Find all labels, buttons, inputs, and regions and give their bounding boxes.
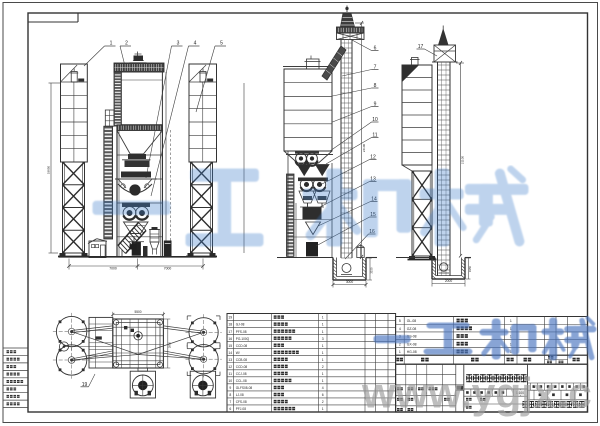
svg-text:GLFS08-08: GLFS08-08 <box>236 386 253 390</box>
svg-text:2000: 2000 <box>445 279 453 283</box>
svg-text:www.ygjx.c: www.ygjx.c <box>361 370 592 418</box>
svg-text:CFS-08: CFS-08 <box>236 400 247 404</box>
svg-text:1: 1 <box>322 330 324 334</box>
svg-text:CCD-08: CCD-08 <box>236 344 248 348</box>
svg-text:1: 1 <box>322 379 324 383</box>
svg-text:1950: 1950 <box>468 265 472 272</box>
svg-text:7000: 7000 <box>109 266 117 270</box>
svg-text:5: 5 <box>220 41 223 47</box>
svg-text:3: 3 <box>322 337 324 341</box>
svg-text:3150: 3150 <box>369 267 373 274</box>
svg-text:3000: 3000 <box>346 280 354 284</box>
svg-text:1: 1 <box>322 344 324 348</box>
svg-text:6: 6 <box>229 407 231 411</box>
svg-text:19: 19 <box>228 316 232 320</box>
svg-text:CCJ-08: CCJ-08 <box>236 372 247 376</box>
svg-text:LJ-08: LJ-08 <box>236 393 244 397</box>
svg-text:GJ-08: GJ-08 <box>236 323 245 327</box>
svg-text:CCL-08: CCL-08 <box>236 379 247 383</box>
svg-text:7: 7 <box>229 400 231 404</box>
svg-text:4: 4 <box>194 41 197 47</box>
svg-text:1: 1 <box>322 358 324 362</box>
svg-text:6: 6 <box>322 393 324 397</box>
svg-text:15: 15 <box>228 344 232 348</box>
svg-text:8: 8 <box>229 393 231 397</box>
svg-text:5: 5 <box>399 319 401 323</box>
svg-text:1: 1 <box>399 350 401 354</box>
svg-text:PFJ-08: PFJ-08 <box>236 407 247 411</box>
svg-text:13: 13 <box>228 358 232 362</box>
svg-text:10: 10 <box>228 379 232 383</box>
svg-text:2: 2 <box>322 365 324 369</box>
svg-text:W/: W/ <box>236 351 240 355</box>
svg-text:24100: 24100 <box>362 143 366 152</box>
svg-text:1: 1 <box>510 319 512 323</box>
svg-text:16: 16 <box>228 337 232 341</box>
svg-text:1: 1 <box>322 323 324 327</box>
svg-text:9: 9 <box>229 386 231 390</box>
svg-text:1: 1 <box>322 372 324 376</box>
svg-text:PG-100Q: PG-100Q <box>236 337 250 341</box>
svg-text:1: 1 <box>322 407 324 411</box>
svg-text:17: 17 <box>228 330 232 334</box>
svg-text:18: 18 <box>228 323 232 327</box>
svg-text:1: 1 <box>322 316 324 320</box>
svg-text:1: 1 <box>322 351 324 355</box>
svg-text:11: 11 <box>229 372 233 376</box>
svg-text:14: 14 <box>228 351 232 355</box>
svg-text:18850: 18850 <box>47 165 51 174</box>
svg-text:2850: 2850 <box>167 341 171 348</box>
svg-text:21100: 21100 <box>461 156 465 164</box>
svg-text:HG-08: HG-08 <box>407 350 417 354</box>
svg-text:GL-08: GL-08 <box>407 319 417 323</box>
svg-text:5500: 5500 <box>134 310 141 314</box>
svg-text:7000: 7000 <box>164 266 172 270</box>
svg-text:3: 3 <box>177 41 180 47</box>
svg-text:2: 2 <box>125 41 128 47</box>
svg-text:4: 4 <box>399 327 401 331</box>
svg-text:4: 4 <box>322 386 324 390</box>
svg-text:12: 12 <box>228 365 232 369</box>
svg-text:CCD-08: CCD-08 <box>236 365 248 369</box>
svg-text:1: 1 <box>110 41 113 47</box>
svg-text:GZ-08: GZ-08 <box>407 327 417 331</box>
svg-text:PFS-08: PFS-08 <box>236 330 247 334</box>
svg-text:2: 2 <box>322 400 324 404</box>
svg-text:CCB-08: CCB-08 <box>236 358 248 362</box>
